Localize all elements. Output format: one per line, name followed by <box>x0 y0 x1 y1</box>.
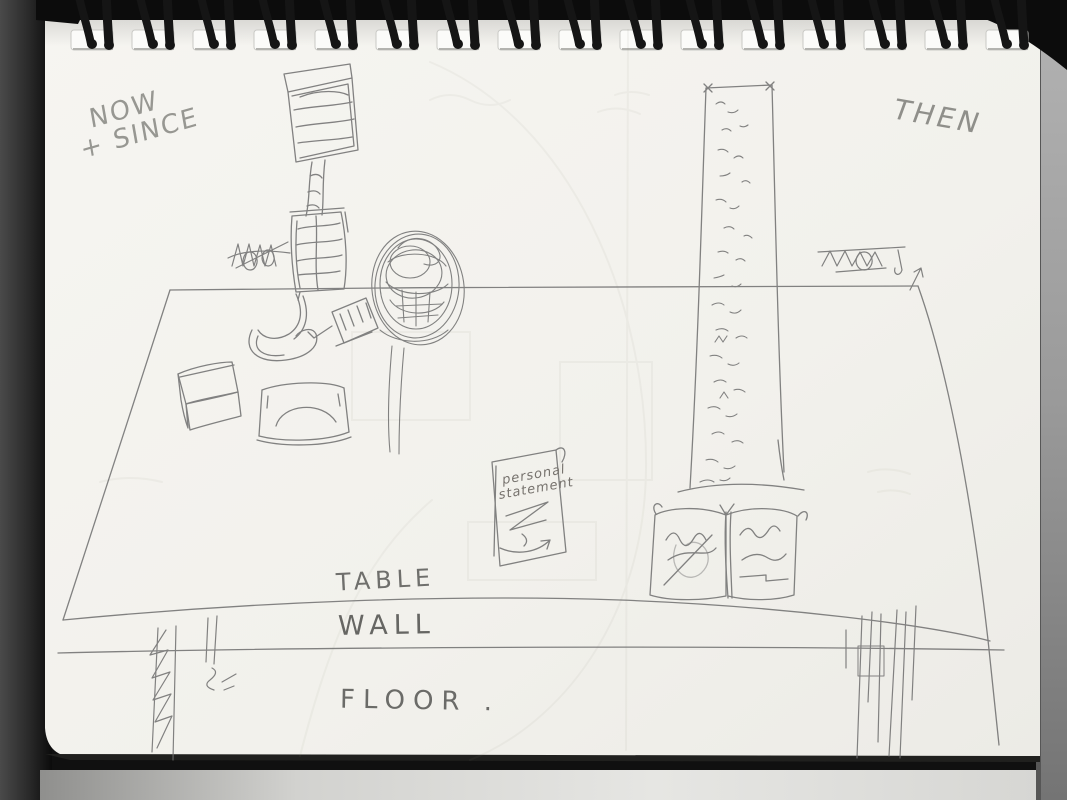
label-wall: WALL <box>338 609 436 642</box>
scanned-sketchbook-page: NOW + SINCE THEN TABLE WALL FLOOR . pers… <box>0 0 1067 800</box>
label-wall-text: WALL <box>338 609 436 642</box>
label-floor: FLOOR . <box>340 685 501 718</box>
label-floor-text: FLOOR . <box>340 685 501 718</box>
label-table: TABLE <box>335 563 436 596</box>
label-table-text: TABLE <box>335 563 436 596</box>
